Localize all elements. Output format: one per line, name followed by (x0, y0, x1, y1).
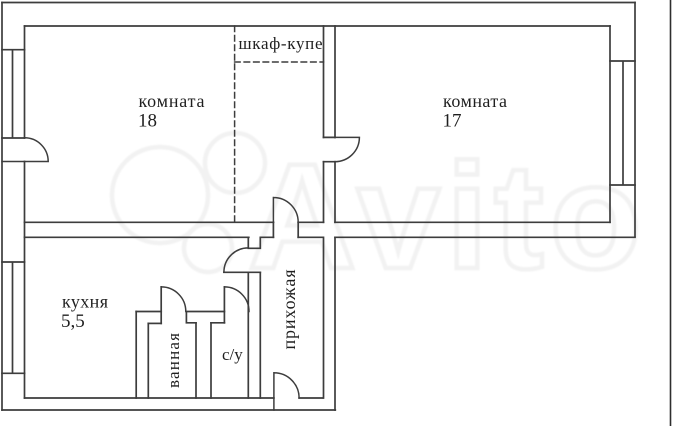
svg-text:комната: комната (139, 91, 205, 111)
svg-text:шкаф-купе: шкаф-купе (239, 34, 323, 53)
svg-text:ванная: ванная (164, 333, 183, 388)
svg-text:5,5: 5,5 (61, 311, 85, 332)
svg-text:комната: комната (443, 91, 507, 111)
svg-text:с/у: с/у (222, 345, 243, 364)
svg-text:18: 18 (138, 111, 157, 132)
svg-text:прихожая: прихожая (279, 270, 299, 350)
svg-text:кухня: кухня (62, 292, 108, 312)
svg-text:17: 17 (443, 111, 462, 132)
svg-text:Avito: Avito (248, 132, 647, 300)
